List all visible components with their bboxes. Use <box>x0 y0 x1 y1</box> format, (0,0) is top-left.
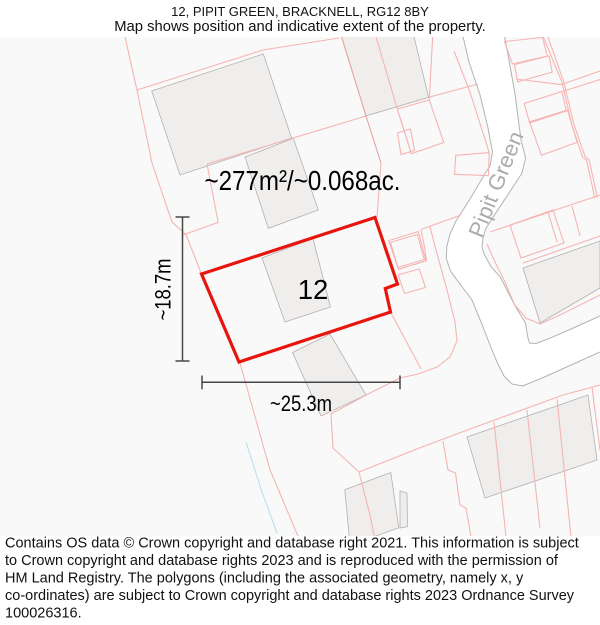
svg-text:HM Land Registry. The polygons: HM Land Registry. The polygons (includin… <box>5 571 524 587</box>
svg-text:~277m²/~0.068ac.: ~277m²/~0.068ac. <box>205 165 401 196</box>
svg-text:Map shows position and indicat: Map shows position and indicative extent… <box>114 19 486 35</box>
svg-text:~25.3m: ~25.3m <box>270 391 332 416</box>
svg-text:to Crown copyright and databas: to Crown copyright and database rights 2… <box>5 553 559 569</box>
svg-text:100026316.: 100026316. <box>5 606 82 622</box>
svg-text:~18.7m: ~18.7m <box>151 259 176 321</box>
svg-text:Contains OS data © Crown copyr: Contains OS data © Crown copyright and d… <box>5 536 579 552</box>
svg-text:12, PIPIT GREEN, BRACKNELL, RG: 12, PIPIT GREEN, BRACKNELL, RG12 8BY <box>171 4 429 19</box>
svg-text:12: 12 <box>298 274 329 305</box>
svg-text:co-ordinates) are subject to C: co-ordinates) are subject to Crown copyr… <box>5 588 575 604</box>
